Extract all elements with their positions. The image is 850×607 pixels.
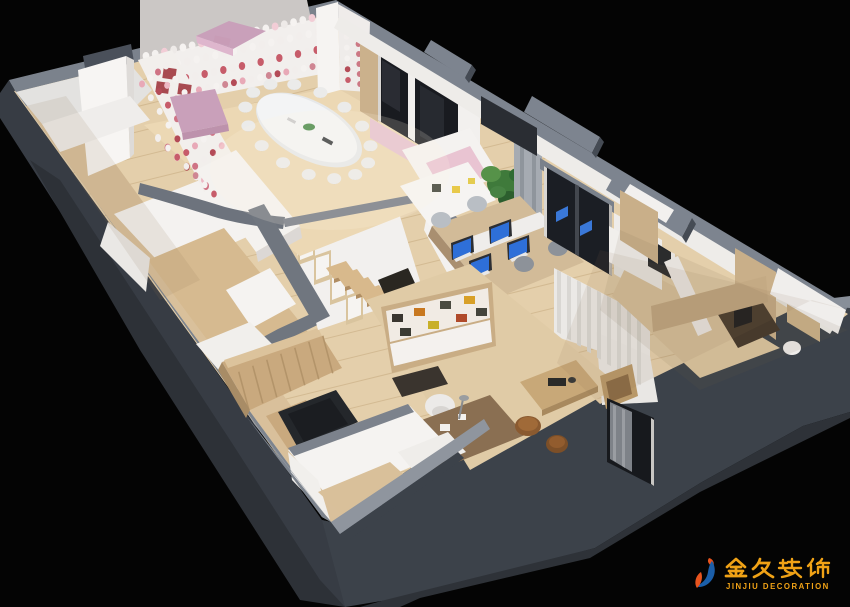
svg-text:JINJIU DECORATION: JINJIU DECORATION [726,582,830,591]
